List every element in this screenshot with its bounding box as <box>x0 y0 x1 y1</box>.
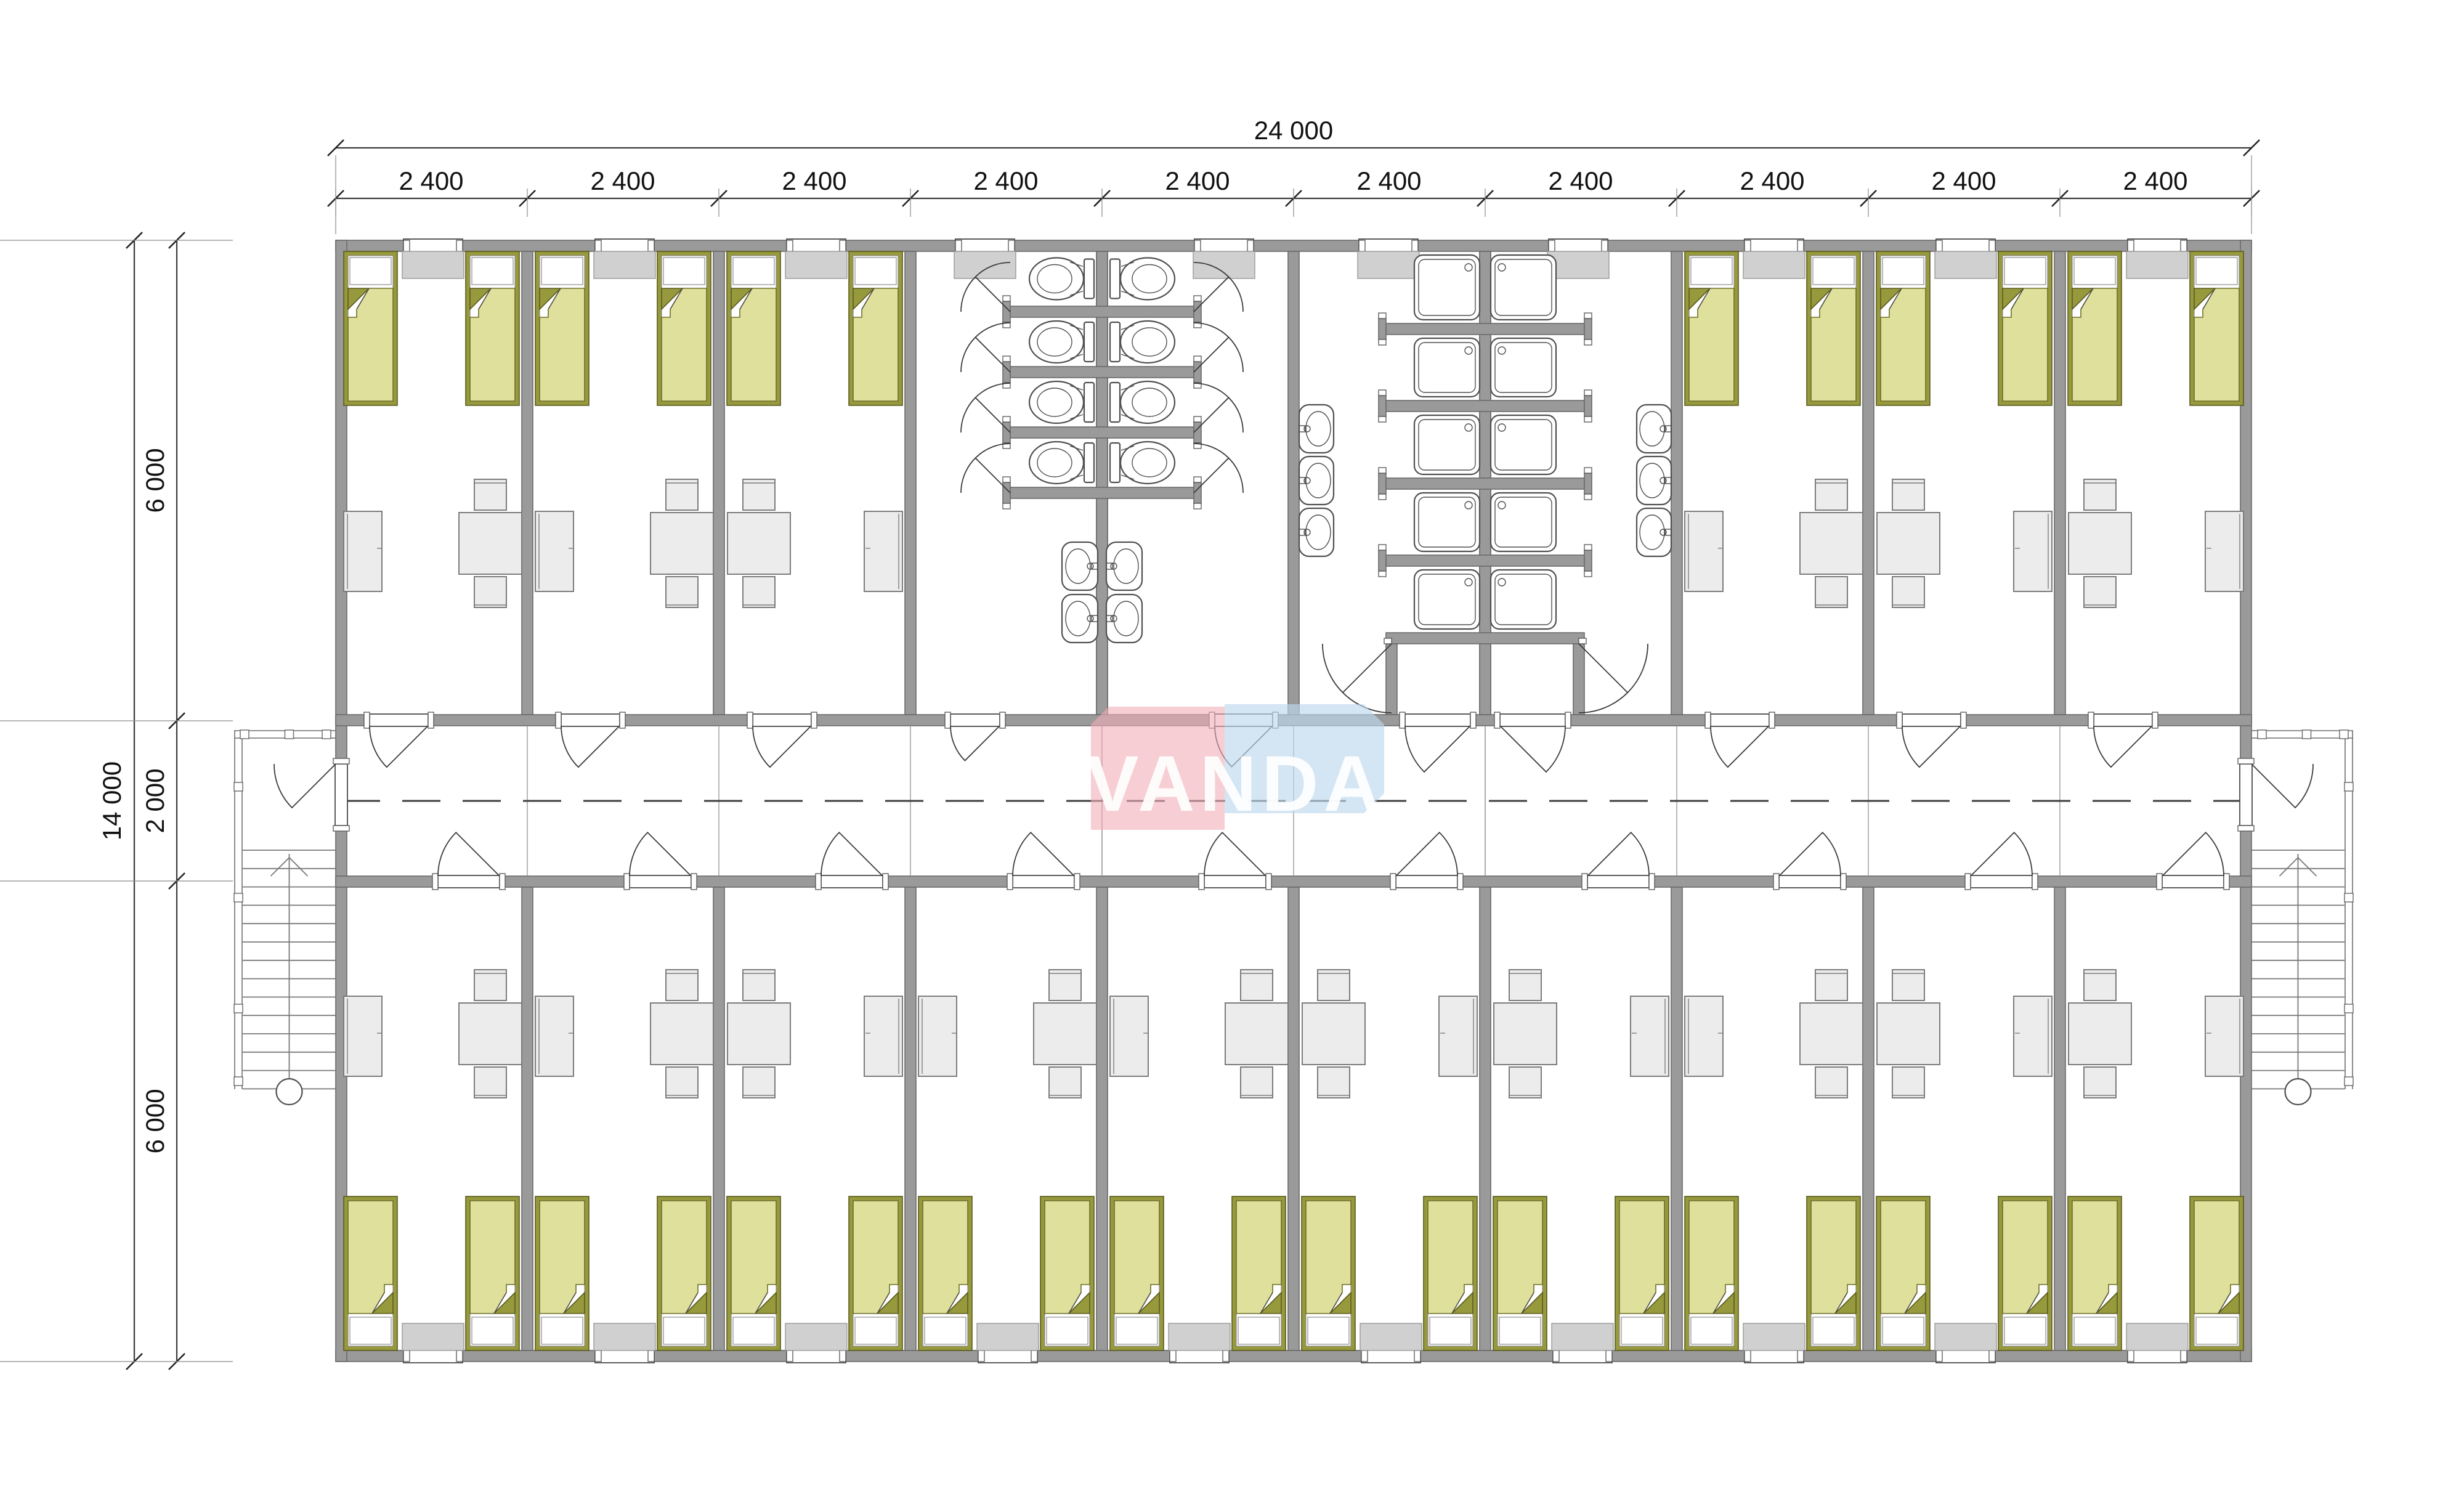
wash-basin <box>1637 457 1671 505</box>
window <box>402 1323 464 1363</box>
watermark-text: VANDA <box>1086 740 1385 828</box>
chair <box>743 479 775 510</box>
door-swing <box>961 444 1010 493</box>
window <box>2126 1323 2188 1363</box>
dimension-segment-label: 2 400 <box>782 166 846 195</box>
wardrobe <box>918 996 957 1076</box>
chair <box>1892 1067 1924 1098</box>
bedroom <box>727 970 902 1350</box>
chair <box>1892 479 1924 510</box>
wardrobe <box>2014 511 2052 591</box>
toilet <box>1029 258 1094 300</box>
bed <box>344 251 397 405</box>
window <box>1743 1323 1805 1363</box>
table <box>1302 1003 1365 1065</box>
chair <box>2084 577 2116 607</box>
bedroom <box>1110 970 1288 1350</box>
door-swing <box>1897 712 1966 767</box>
chair <box>1049 970 1081 1001</box>
chair <box>666 479 698 510</box>
table <box>1225 1003 1288 1065</box>
shower-tray <box>1491 493 1556 551</box>
wash-basin <box>1106 542 1142 590</box>
door-swing <box>364 712 434 767</box>
bedroom <box>1876 251 2052 607</box>
chair <box>474 577 506 607</box>
table <box>1494 1003 1557 1065</box>
door-swing <box>432 832 505 890</box>
shower-tray <box>1491 415 1556 474</box>
bed <box>1807 251 1860 405</box>
window <box>594 1323 655 1363</box>
table <box>459 513 522 574</box>
window <box>977 1323 1039 1363</box>
shower-tray <box>1491 570 1556 629</box>
door-swing <box>1194 323 1243 372</box>
wardrobe <box>1685 996 1723 1076</box>
door-swing <box>1007 832 1080 890</box>
dimension-segment-label: 2 400 <box>1356 166 1421 195</box>
table <box>1800 1003 1863 1065</box>
bed <box>1998 1196 2052 1350</box>
dimension-segment-label: 2 400 <box>399 166 463 195</box>
chair <box>474 1067 506 1098</box>
bed <box>2190 251 2243 405</box>
bed <box>1424 1196 1477 1350</box>
toilet <box>1110 381 1175 423</box>
wash-basin <box>1637 405 1671 453</box>
bed <box>1685 1196 1738 1350</box>
table <box>1800 513 1863 574</box>
wardrobe <box>535 996 573 1076</box>
table <box>727 513 790 574</box>
bed <box>849 1196 902 1350</box>
door-swing <box>961 323 1010 372</box>
wardrobe <box>344 996 382 1076</box>
door-swing <box>816 832 888 890</box>
table <box>727 1003 790 1065</box>
bed <box>1876 1196 1930 1350</box>
door-swing <box>1705 712 1775 767</box>
window <box>1360 1323 1422 1363</box>
wardrobe <box>1439 996 1477 1076</box>
dimension-segment-label: 6 000 <box>140 1089 169 1153</box>
window <box>2126 239 2188 278</box>
bed <box>344 1196 397 1350</box>
table <box>1034 1003 1096 1065</box>
dimension-segment-label: 2 400 <box>590 166 655 195</box>
bed <box>535 251 589 405</box>
toilet <box>1029 442 1094 484</box>
bedroom <box>918 970 1096 1350</box>
table <box>2069 1003 2131 1065</box>
chair <box>1892 577 1924 607</box>
dimension-total-width: 24 000 <box>1254 116 1333 145</box>
chair <box>1318 1067 1350 1098</box>
dimension-segment-label: 2 400 <box>1548 166 1613 195</box>
chair <box>743 577 775 607</box>
bedroom <box>344 970 522 1350</box>
wash-basin <box>1299 457 1334 505</box>
bed <box>2190 1196 2243 1350</box>
chair <box>743 970 775 1001</box>
shower-tray <box>1414 338 1480 397</box>
bedroom <box>344 251 522 607</box>
wardrobe <box>864 996 902 1076</box>
chair <box>2084 1067 2116 1098</box>
table <box>1877 513 1940 574</box>
window <box>954 239 1016 278</box>
wash-basin <box>1637 508 1671 556</box>
door-swing <box>1323 644 1392 713</box>
table <box>2069 513 2131 574</box>
door-swing <box>1400 712 1476 772</box>
chair <box>2084 970 2116 1001</box>
door-swing <box>945 712 1005 761</box>
door-swing <box>624 832 697 890</box>
toilet <box>1029 381 1094 423</box>
bed <box>1302 1196 1355 1350</box>
door-swing <box>2157 832 2229 890</box>
window <box>402 239 464 278</box>
wash-basin <box>1106 595 1142 643</box>
bed <box>2068 1196 2122 1350</box>
table <box>1877 1003 1940 1065</box>
door-swing <box>2238 758 2313 831</box>
window <box>1358 239 1419 278</box>
wardrobe <box>344 511 382 591</box>
chair <box>1241 970 1273 1001</box>
chair <box>666 1067 698 1098</box>
bedroom <box>2068 970 2243 1350</box>
chair <box>666 577 698 607</box>
door-swing <box>1965 832 2038 890</box>
floor-plan-drawing: VANDA 24 000 14 000 2 4002 4002 4002 400… <box>0 0 2464 1502</box>
window <box>594 239 655 278</box>
shower-tray <box>1491 255 1556 320</box>
bedroom <box>535 970 713 1350</box>
bed <box>918 1196 972 1350</box>
bed <box>727 251 780 405</box>
dimension-segment-label: 6 000 <box>140 448 169 513</box>
chair <box>474 479 506 510</box>
wardrobe <box>1631 996 1669 1076</box>
bed <box>657 1196 711 1350</box>
door-swing <box>2088 712 2158 767</box>
dimension-segment-label: 2 000 <box>140 768 169 833</box>
chair <box>1509 1067 1541 1098</box>
dimension-segment-label: 2 400 <box>2123 166 2187 195</box>
dimension-segment-label: 2 400 <box>1165 166 1230 195</box>
shower-tray <box>1414 493 1480 551</box>
shower-tray <box>1414 570 1480 629</box>
wash-basin <box>1299 405 1334 453</box>
door-swing <box>1194 383 1243 432</box>
door-swing <box>1582 832 1655 890</box>
wash-basin <box>1062 595 1098 643</box>
door-swing <box>1194 444 1243 493</box>
chair <box>1815 479 1847 510</box>
door-swing <box>747 712 817 767</box>
table <box>650 1003 713 1065</box>
door-swing <box>1494 712 1571 772</box>
toilet <box>1110 321 1175 363</box>
toilet <box>1029 321 1094 363</box>
toilet <box>1110 258 1175 300</box>
wardrobe <box>2205 511 2243 591</box>
door-swing <box>1199 832 1271 890</box>
window <box>1935 1323 1996 1363</box>
staircase-porch <box>234 730 336 1105</box>
wardrobe <box>535 511 573 591</box>
door-swing <box>1390 832 1463 890</box>
window <box>1552 1323 1613 1363</box>
wardrobe <box>864 511 902 591</box>
bed <box>1493 1196 1547 1350</box>
door-swing <box>1773 832 1846 890</box>
chair <box>1318 970 1350 1001</box>
bedroom <box>1302 970 1477 1350</box>
bed <box>466 1196 519 1350</box>
toilet <box>1110 442 1175 484</box>
dimension-total-height: 14 000 <box>97 761 126 840</box>
bedroom <box>1493 970 1669 1350</box>
bed <box>1685 251 1738 405</box>
bed <box>1040 1196 1094 1350</box>
door-swing <box>556 712 625 767</box>
shower-tray <box>1491 338 1556 397</box>
chair <box>743 1067 775 1098</box>
bed <box>1615 1196 1669 1350</box>
wardrobe <box>1110 996 1148 1076</box>
chair <box>1049 1067 1081 1098</box>
bedroom <box>727 251 902 607</box>
dimension-segment-label: 2 400 <box>1931 166 1996 195</box>
bed <box>727 1196 780 1350</box>
bedroom <box>2068 251 2243 607</box>
vanda-watermark: VANDA <box>1086 704 1385 830</box>
bed <box>1876 251 1930 405</box>
bed <box>1110 1196 1164 1350</box>
bed <box>2068 251 2122 405</box>
bed <box>466 251 519 405</box>
bed <box>849 251 902 405</box>
dimension-segment-label: 2 400 <box>1740 166 1804 195</box>
chair <box>2084 479 2116 510</box>
staircase-porch <box>2251 730 2353 1105</box>
wash-basin <box>1062 542 1098 590</box>
window <box>1743 239 1805 278</box>
table <box>650 513 713 574</box>
bedroom <box>1876 970 2052 1350</box>
shower-tray <box>1414 255 1480 320</box>
chair <box>474 970 506 1001</box>
wardrobe <box>2014 996 2052 1076</box>
door-swing <box>274 758 349 831</box>
wardrobe <box>2205 996 2243 1076</box>
window <box>1935 239 1996 278</box>
dimension-segment-label: 2 400 <box>973 166 1038 195</box>
chair <box>1815 577 1847 607</box>
window <box>785 1323 847 1363</box>
floor-plan-page: VANDA 24 000 14 000 2 4002 4002 4002 400… <box>0 0 2464 1502</box>
door-swing <box>1579 644 1648 713</box>
window <box>1169 1323 1230 1363</box>
wash-basin <box>1299 508 1334 556</box>
bed <box>657 251 711 405</box>
chair <box>1815 970 1847 1001</box>
door-swing <box>961 383 1010 432</box>
chair <box>1892 970 1924 1001</box>
chair <box>1509 970 1541 1001</box>
wardrobe <box>1685 511 1723 591</box>
chair <box>1815 1067 1847 1098</box>
table <box>459 1003 522 1065</box>
chair <box>666 970 698 1001</box>
bed <box>535 1196 589 1350</box>
window <box>785 239 847 278</box>
bedroom <box>535 251 713 607</box>
bedroom <box>1685 970 1863 1350</box>
shower-tray <box>1414 415 1480 474</box>
bed <box>1998 251 2052 405</box>
bed <box>1807 1196 1860 1350</box>
bed <box>1232 1196 1286 1350</box>
bedroom <box>1685 251 1863 607</box>
chair <box>1241 1067 1273 1098</box>
